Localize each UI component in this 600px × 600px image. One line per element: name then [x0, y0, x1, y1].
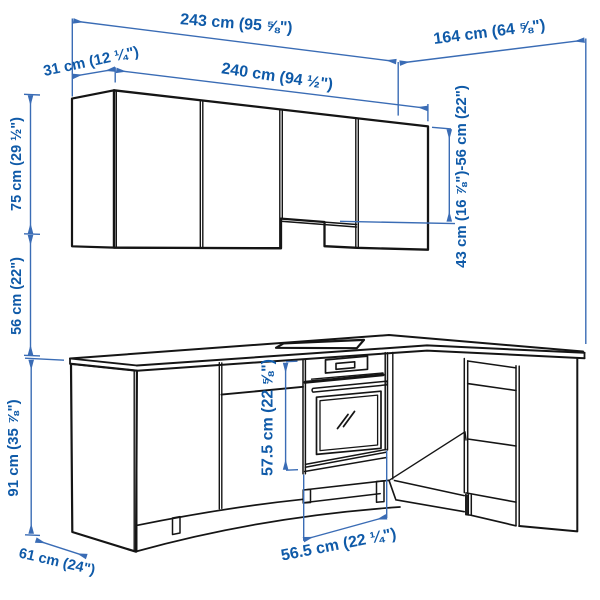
svg-text:61 cm (24"): 61 cm (24") — [17, 546, 97, 579]
svg-text:240 cm (94 ½"): 240 cm (94 ½") — [220, 60, 334, 93]
svg-text:57.5 cm (22 ⅝"): 57.5 cm (22 ⅝") — [260, 359, 277, 476]
svg-text:75 cm (29 ½"): 75 cm (29 ½") — [9, 117, 25, 211]
svg-text:56 cm (22"): 56 cm (22") — [9, 257, 25, 335]
svg-text:43 cm (16 ⅞")-56 cm (22"): 43 cm (16 ⅞")-56 cm (22") — [453, 85, 470, 268]
svg-text:31 cm (12 ¼"): 31 cm (12 ¼") — [42, 43, 141, 80]
svg-text:91 cm (35 ⅞"): 91 cm (35 ⅞") — [5, 399, 22, 496]
svg-text:56.5 cm (22 ¼"): 56.5 cm (22 ¼") — [280, 526, 398, 565]
svg-text:243 cm (95 ⅝"): 243 cm (95 ⅝") — [180, 11, 294, 37]
svg-text:164 cm (64 ⅝"): 164 cm (64 ⅝") — [433, 17, 547, 48]
